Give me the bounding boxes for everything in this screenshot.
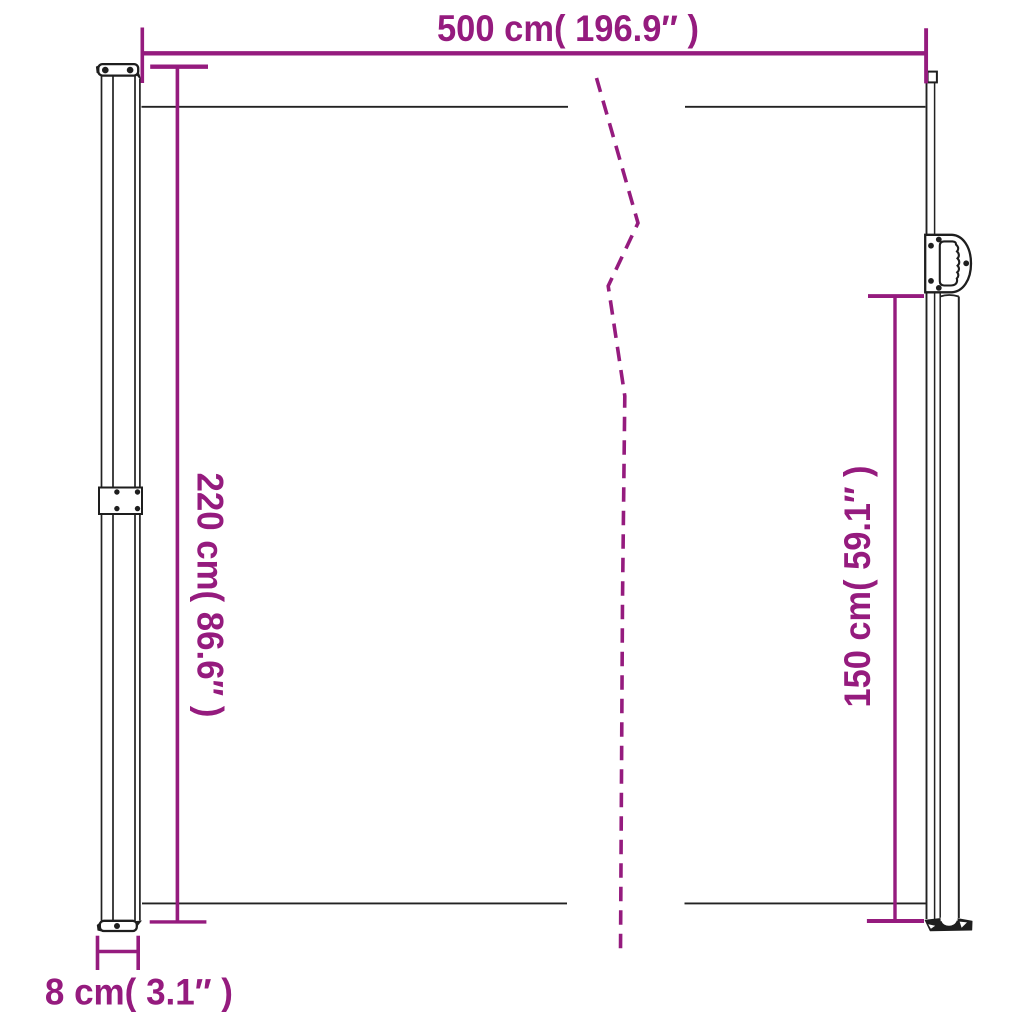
svg-text:150 cm( 59.1″ ): 150 cm( 59.1″ ) [837,466,878,708]
svg-text:500 cm( 196.9″ ): 500 cm( 196.9″ ) [437,8,699,49]
svg-text:220 cm( 86.6″ ): 220 cm( 86.6″ ) [190,473,231,718]
svg-text:8 cm( 3.1″ ): 8 cm( 3.1″ ) [45,972,233,1013]
